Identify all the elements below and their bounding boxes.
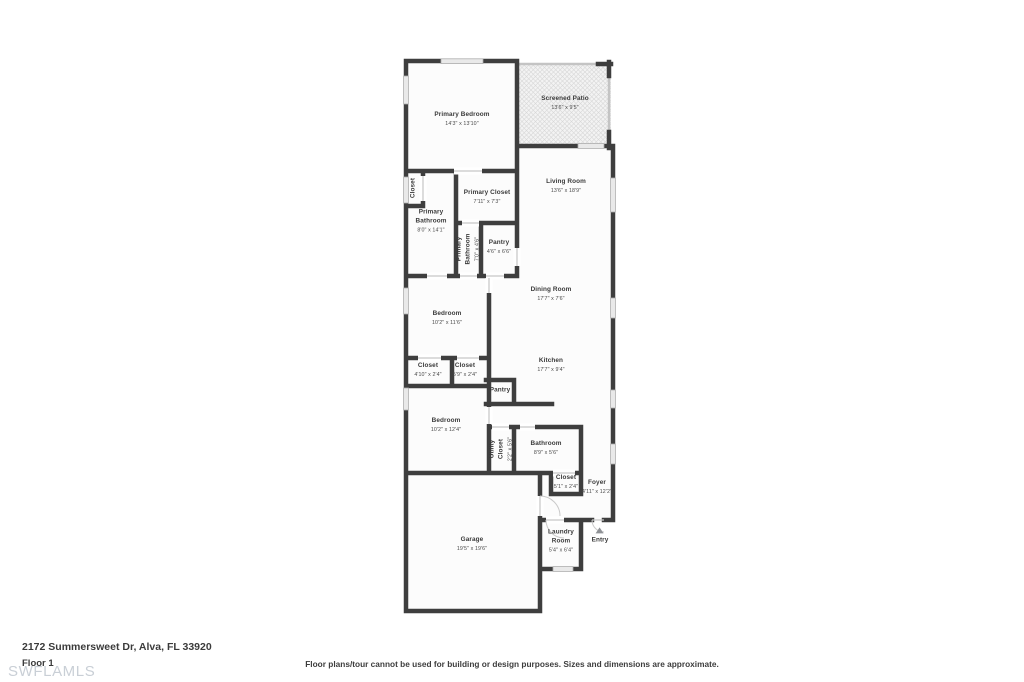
room-dimensions: 14'3" x 13'10" <box>434 121 489 127</box>
room-label: Primary Bathroom7'0" x 4'6" <box>456 234 481 265</box>
room-label: Foyer4'11" x 12'2" <box>582 479 612 495</box>
room-label: Primary Bathroom8'0" x 14'1" <box>416 209 447 234</box>
room-label: Pantry4'6" x 6'6" <box>487 239 511 255</box>
room-name: Kitchen <box>537 357 564 366</box>
room-label: Kitchen17'7" x 9'4" <box>537 357 564 373</box>
room-name: Garage <box>457 536 487 545</box>
room-label: Closet5'9" x 2'4" <box>453 362 477 378</box>
room-name: Closet <box>414 362 441 371</box>
room-name: Bathroom <box>531 440 562 449</box>
entry-arrow-icon <box>596 527 604 533</box>
room-label: Utility Closet2'2" x 5'6" <box>489 437 514 461</box>
room-dimensions: 8'0" x 14'1" <box>416 227 447 233</box>
floorplan-svg <box>0 0 1024 682</box>
room-dimensions: 7'11" x 7'3" <box>464 199 511 205</box>
room-label: Bedroom10'2" x 12'4" <box>431 417 461 433</box>
entry-label: Entry <box>592 527 609 544</box>
room-dimensions: 17'7" x 9'4" <box>537 367 564 373</box>
room-dimensions: 4'6" x 6'6" <box>487 249 511 255</box>
room-dimensions: 8'9" x 5'6" <box>531 450 562 456</box>
room-label: Bathroom8'9" x 5'6" <box>531 440 562 456</box>
room-label: Bedroom10'2" x 11'6" <box>432 310 462 326</box>
room-dimensions: 13'6" x 18'9" <box>546 188 586 194</box>
room-label: Dining Room17'7" x 7'6" <box>531 286 572 302</box>
room-dimensions: 7'0" x 4'6" <box>474 234 480 265</box>
room-name: Closet <box>453 362 477 371</box>
room-name: Entry <box>592 536 609 545</box>
room-dimensions: 10'2" x 12'4" <box>431 427 461 433</box>
room-dimensions: 19'5" x 19'6" <box>457 546 487 552</box>
disclaimer-text: Floor plans/tour cannot be used for buil… <box>0 659 1024 669</box>
room-dimensions: 10'2" x 11'6" <box>432 320 462 326</box>
room-dimensions: 5'4" x 6'4" <box>548 547 574 553</box>
room-name: Living Room <box>546 178 586 187</box>
floor-plan: Primary Bedroom14'3" x 13'10"Screened Pa… <box>0 0 1024 682</box>
room-label: Screened Patio13'6" x 9'5" <box>541 95 589 111</box>
room-name: Primary Bathroom <box>456 234 473 265</box>
room-name: Pantry <box>490 387 511 396</box>
room-dimensions: 5'9" x 2'4" <box>453 372 477 378</box>
room-name: Utility Closet <box>489 437 506 461</box>
room-label: Laundry Room5'4" x 6'4" <box>548 529 574 554</box>
room-name: Bedroom <box>432 310 462 319</box>
room-name: Foyer <box>582 479 612 488</box>
room-name: Dining Room <box>531 286 572 295</box>
room-name: Primary Closet <box>464 189 511 198</box>
room-name: Screened Patio <box>541 95 589 104</box>
room-name: Closet <box>554 474 578 483</box>
room-dimensions: 4'11" x 12'2" <box>582 489 612 495</box>
room-name: Laundry Room <box>548 529 574 546</box>
room-label: Pantry <box>490 387 511 396</box>
room-name: Bedroom <box>431 417 461 426</box>
room-label: Closet5'1" x 2'4" <box>554 474 578 490</box>
property-address: 2172 Summersweet Dr, Alva, FL 33920 <box>22 641 212 653</box>
room-label: Closet4'10" x 2'4" <box>414 362 441 378</box>
room-label: Primary Closet7'11" x 7'3" <box>464 189 511 205</box>
room-dimensions: 13'6" x 9'5" <box>541 105 589 111</box>
room-name: Closet <box>410 178 419 198</box>
room-name: Primary Bedroom <box>434 111 489 120</box>
room-dimensions: 5'1" x 2'4" <box>554 484 578 490</box>
floorplan-page: { "footer": { "address": "2172 Summerswe… <box>0 0 1024 682</box>
room-dimensions: 17'7" x 7'6" <box>531 296 572 302</box>
room-label: Garage19'5" x 19'6" <box>457 536 487 552</box>
room-dimensions: 4'10" x 2'4" <box>414 372 441 378</box>
room-label: Closet <box>410 178 419 198</box>
room-label: Living Room13'6" x 18'9" <box>546 178 586 194</box>
room-label: Primary Bedroom14'3" x 13'10" <box>434 111 489 127</box>
room-dimensions: 2'2" x 5'6" <box>507 437 513 461</box>
room-name: Pantry <box>487 239 511 248</box>
room-name: Primary Bathroom <box>416 209 447 226</box>
